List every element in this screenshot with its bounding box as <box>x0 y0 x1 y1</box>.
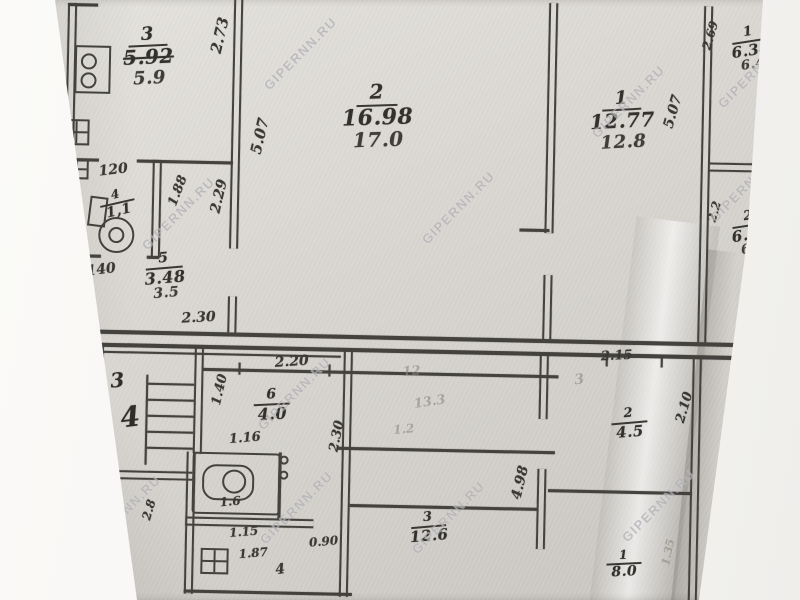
dimension-label: 1.35 <box>50 366 80 382</box>
paper-edge-shadow <box>0 0 800 600</box>
room-area-revised: 8.0 <box>83 529 107 545</box>
room-label: 18.048.0 <box>73 498 114 546</box>
room-area: 8.04 <box>75 513 113 532</box>
room-number: 1 <box>73 498 110 518</box>
floor-plan-paper: 35.925.9216.9817.0112.7712.816.386.426.6… <box>0 0 800 600</box>
wall-segment <box>90 346 104 592</box>
window-grid-icon <box>48 539 85 590</box>
wall-segment <box>761 8 769 258</box>
photo-background: 35.925.9216.9817.0112.7712.816.386.426.6… <box>0 0 800 600</box>
